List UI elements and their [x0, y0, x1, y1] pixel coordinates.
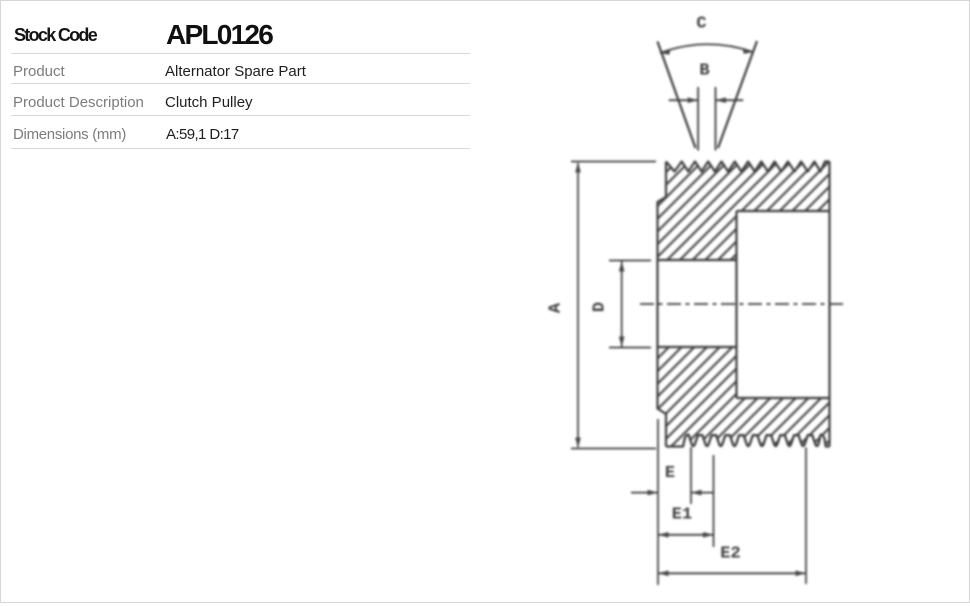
- svg-text:A: A: [547, 302, 566, 313]
- svg-text:E2: E2: [720, 545, 740, 564]
- svg-text:C: C: [696, 15, 706, 34]
- svg-text:B: B: [699, 62, 709, 81]
- svg-text:E1: E1: [672, 506, 692, 525]
- svg-text:E: E: [665, 464, 675, 483]
- svg-text:D: D: [591, 302, 610, 312]
